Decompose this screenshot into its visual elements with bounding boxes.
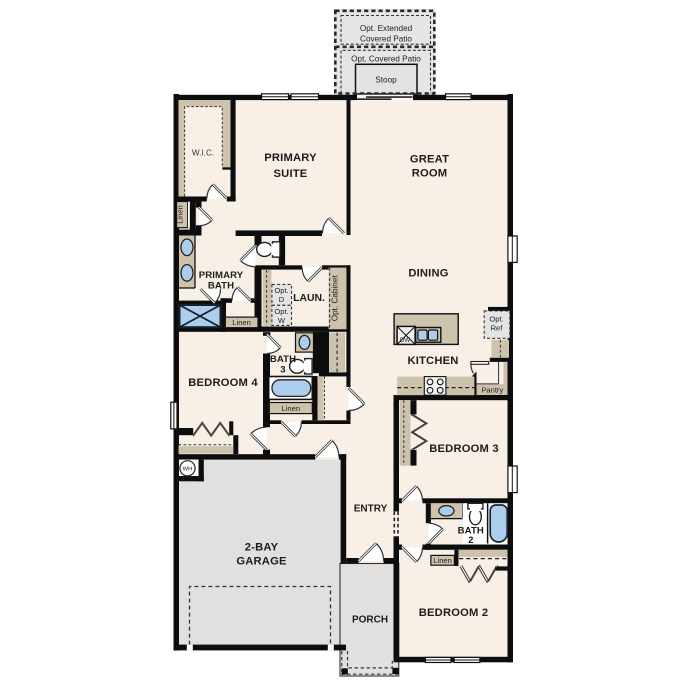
svg-text:BATH: BATH — [270, 354, 296, 365]
svg-text:Ref: Ref — [491, 324, 504, 333]
svg-text:SUITE: SUITE — [274, 168, 308, 180]
svg-text:Linen: Linen — [232, 318, 251, 327]
svg-text:Opt. Cabinet: Opt. Cabinet — [330, 275, 339, 322]
svg-text:Opt. Extended: Opt. Extended — [360, 24, 413, 33]
svg-text:BEDROOM 3: BEDROOM 3 — [429, 443, 499, 455]
svg-text:Pantry: Pantry — [481, 385, 503, 394]
svg-text:LAUN.: LAUN. — [293, 293, 325, 304]
svg-text:Stoop: Stoop — [375, 76, 397, 85]
svg-text:Linen: Linen — [175, 205, 184, 224]
svg-text:BEDROOM 2: BEDROOM 2 — [419, 607, 489, 619]
svg-text:DINING: DINING — [408, 267, 448, 279]
svg-text:PRIMARY: PRIMARY — [199, 270, 244, 281]
svg-text:Opt.: Opt. — [274, 286, 288, 295]
svg-text:Linen: Linen — [282, 404, 301, 413]
svg-text:2-BAY: 2-BAY — [245, 542, 279, 554]
svg-text:3: 3 — [280, 364, 285, 375]
svg-text:D: D — [279, 295, 285, 304]
svg-text:BATH: BATH — [208, 281, 234, 292]
svg-text:WH: WH — [183, 467, 193, 473]
svg-text:DW: DW — [400, 337, 410, 344]
svg-text:Opt.: Opt. — [489, 315, 503, 324]
svg-text:2: 2 — [468, 535, 473, 546]
svg-text:ENTRY: ENTRY — [354, 504, 388, 515]
svg-text:W.I.C.: W.I.C. — [192, 149, 214, 158]
svg-text:Linen: Linen — [433, 556, 452, 565]
svg-text:ROOM: ROOM — [412, 168, 448, 180]
svg-text:Opt. Covered Patio: Opt. Covered Patio — [351, 55, 421, 64]
svg-text:Opt.: Opt. — [274, 307, 288, 316]
svg-text:PRIMARY: PRIMARY — [264, 152, 317, 164]
svg-text:W: W — [278, 316, 286, 325]
svg-text:KITCHEN: KITCHEN — [407, 355, 458, 367]
svg-text:GREAT: GREAT — [410, 154, 449, 166]
svg-text:BEDROOM 4: BEDROOM 4 — [188, 377, 258, 389]
svg-text:GARAGE: GARAGE — [236, 556, 287, 568]
svg-text:Covered Patio: Covered Patio — [360, 35, 412, 44]
svg-text:PORCH: PORCH — [352, 615, 388, 626]
